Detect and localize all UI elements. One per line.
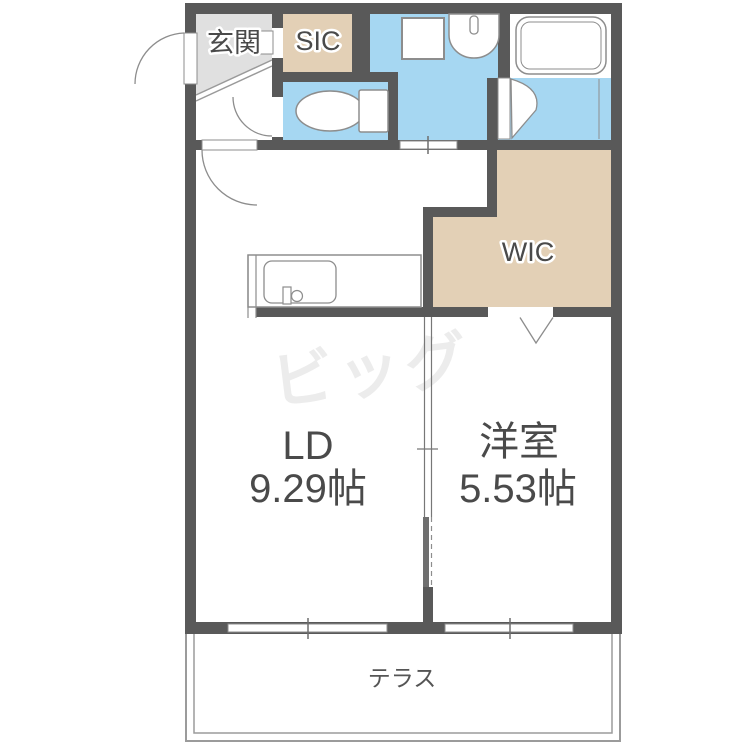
watermark-logo: ビッグ: [268, 325, 476, 418]
wall-counter-wic-bottom: [256, 307, 612, 317]
partition-pocket-wall: [423, 517, 429, 587]
label-wic: WIC: [502, 237, 554, 267]
label-sic: SIC: [295, 26, 340, 56]
bathtub: [516, 17, 606, 74]
washbasin-faucet: [470, 16, 478, 34]
ld-door-arc: [202, 150, 257, 205]
wall-right: [611, 3, 622, 634]
wall-toilet-right: [388, 72, 398, 150]
washing-machine-pad: [402, 18, 444, 59]
wall-wic-jog: [423, 207, 497, 217]
sic-opening: [272, 28, 283, 58]
toilet-door: [272, 97, 283, 137]
wall-sic-washroom: [352, 14, 370, 72]
label-genkan: 玄関: [207, 28, 261, 58]
floor-plan-drawing: ビッグ: [0, 0, 750, 750]
wall-wic-left-upper: [487, 150, 497, 210]
toilet-bowl: [296, 91, 364, 131]
wall-washroom-bath-lower: [487, 78, 498, 150]
label-western-room: 洋室: [479, 420, 559, 464]
wall-wic-left-lower: [423, 217, 433, 307]
label-ld: LD: [282, 424, 333, 468]
floor-plan: ビッグ: [0, 0, 750, 750]
wic-door-opening: [488, 307, 553, 317]
entrance-door: [184, 33, 197, 84]
room-wic-floor: [433, 150, 611, 307]
toilet-tank: [359, 90, 388, 132]
entrance-door-arc: [135, 33, 184, 84]
wall-washroom-bath-upper: [498, 14, 510, 78]
label-terrace: テラス: [368, 665, 437, 691]
kitchen-faucet-knob: [292, 291, 303, 302]
wall-left: [185, 3, 196, 634]
label-western-room-size: 5.53帖: [459, 467, 577, 511]
wall-top: [185, 3, 622, 14]
label-ld-size: 9.29帖: [249, 467, 367, 511]
ld-door: [202, 140, 257, 150]
kitchen-faucet: [283, 287, 291, 304]
wall-partition-lower: [423, 587, 433, 634]
balcony-window-right: [445, 624, 573, 632]
wic-folding-door: [520, 318, 553, 344]
bathroom-door-jamb: [498, 78, 510, 139]
wall-below-sic: [272, 72, 398, 82]
